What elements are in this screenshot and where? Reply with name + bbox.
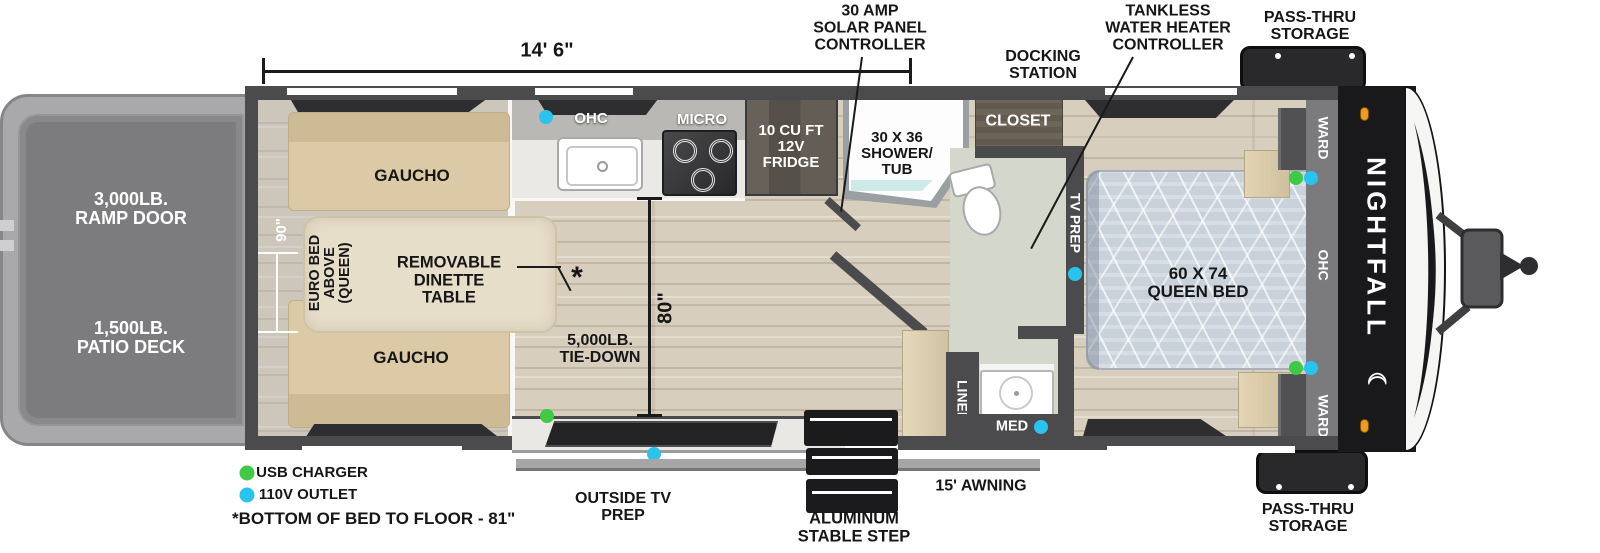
passthru-top-callout: PASS-THRU STORAGE [1264, 9, 1356, 43]
asterisk-leader-line [517, 266, 561, 268]
dinette-label: REMOVABLE DINETTE TABLE [397, 255, 501, 308]
stable-step-label: ALUMINUM STABLE STEP [798, 510, 910, 545]
closet-label: CLOSET [986, 112, 1051, 129]
garage-dim-tick [256, 252, 298, 254]
window [302, 446, 462, 453]
stable-step-line [812, 491, 892, 494]
legend-outlet-dot [240, 488, 255, 503]
hitch-tongue [1428, 198, 1546, 362]
gaucho-sofa-top [288, 112, 510, 211]
garage-dim-label: 90" [274, 218, 290, 242]
usb-charger-dot [540, 409, 554, 423]
height-dim-tick [637, 414, 662, 417]
screw-icon [1349, 53, 1355, 59]
length-dim-tick [262, 58, 265, 84]
legend-usb-label: USB CHARGER [256, 465, 368, 481]
stable-step-line [812, 456, 892, 459]
floorplan-diagram: 3,000LB. RAMP DOOR 1,500LB. PATIO DECK G… [0, 0, 1600, 553]
window [1107, 446, 1295, 453]
burner-icon [709, 139, 733, 163]
microwave-label: MICRO [677, 112, 727, 128]
asterisk-marker: * [571, 262, 583, 294]
ramp-door-panel [18, 114, 244, 426]
height-dim-tick [637, 197, 662, 200]
burner-icon [691, 168, 715, 192]
height-dim-label: 80" [656, 292, 677, 324]
wall-rear [245, 86, 258, 450]
garage-dim-line [276, 253, 278, 333]
screw-icon [1276, 484, 1282, 490]
shower-water-edge [851, 180, 933, 191]
vanity-drain-icon [1014, 391, 1019, 396]
garage-dim-tick [256, 331, 298, 333]
length-dim-tick [909, 58, 912, 84]
110v-outlet-dot [1304, 361, 1318, 375]
outside-tv-mat [545, 421, 778, 447]
window [1105, 88, 1237, 95]
legend-outlet-label: 110V OUTLET [259, 487, 357, 503]
usb-charger-dot [1289, 171, 1303, 185]
docking-station-callout: DOCKING STATION [1005, 48, 1081, 82]
ramp-door-label: 3,000LB. RAMP DOOR [75, 190, 187, 229]
euro-bed-label: EURO BED ABOVE (QUEEN) [308, 235, 354, 312]
window [287, 88, 457, 95]
legend-usb-dot [240, 466, 255, 481]
awning-bar [516, 459, 1040, 471]
pantry-cabinet [902, 330, 949, 440]
bed-ohc-label: OHC [1316, 249, 1331, 280]
brand-logo-text: NIGHTFALL [1362, 157, 1389, 339]
deck-hinge-icon [0, 240, 14, 251]
entry-step-line [810, 418, 892, 421]
sink-drain-icon [597, 161, 608, 172]
deck-hinge-icon [0, 220, 14, 231]
shower-label: 30 X 36 SHOWER/ TUB [861, 130, 933, 178]
patio-deck-label: 1,500LB. PATIO DECK [77, 319, 185, 358]
gaucho-top-label: GAUCHO [374, 167, 450, 185]
bed-foot-edge [1086, 170, 1099, 370]
gaucho-bottom-label: GAUCHO [373, 349, 449, 367]
fridge-label: 10 CU FT 12V FRIDGE [758, 123, 823, 171]
burner-icon [673, 139, 697, 163]
screw-icon [1348, 484, 1354, 490]
length-dim-label: 14' 6" [520, 40, 573, 61]
ward-top-label: WARD [1316, 117, 1331, 160]
110v-outlet-dot [1304, 171, 1318, 185]
wall-below-closet [975, 146, 1066, 158]
kitchen-ohc-label: OHC [574, 111, 607, 127]
length-dim-line [263, 70, 911, 73]
usb-charger-dot [1289, 361, 1303, 375]
crescent-moon-icon: ☾ [1363, 371, 1388, 393]
footnote: *BOTTOM OF BED TO FLOOR - 81" [232, 509, 515, 529]
outside-tv-label: OUTSIDE TV PREP [575, 490, 671, 524]
110v-outlet-dot [539, 110, 553, 124]
stable-step-2 [806, 479, 898, 513]
tankless-controller-callout: TANKLESS WATER HEATER CONTROLLER [1105, 2, 1231, 53]
stove-cooktop [662, 130, 737, 196]
stable-step-1 [806, 448, 898, 475]
queen-bed-label: 60 X 74 QUEEN BED [1147, 265, 1248, 301]
med-cabinet-label: MED [996, 419, 1028, 435]
110v-outlet-dot [1034, 420, 1048, 434]
marker-light-icon [1360, 419, 1369, 433]
110v-outlet-dot [1068, 267, 1082, 281]
ward-bottom-label: WARD [1316, 395, 1331, 438]
solar-controller-callout: 30 AMP SOLAR PANEL CONTROLLER [813, 2, 926, 53]
height-dim-line [648, 199, 651, 417]
kitchen-sink [557, 137, 643, 191]
passthru-bottom-callout: PASS-THRU STORAGE [1262, 501, 1354, 535]
screw-icon [1275, 53, 1281, 59]
tv-prep-label: TV PREP [1068, 193, 1083, 253]
tie-down-label: 5,000LB. TIE-DOWN [560, 332, 641, 366]
marker-light-icon [1360, 107, 1369, 121]
awning-label: 15' AWNING [935, 477, 1026, 494]
entry-step-interior [804, 410, 898, 446]
window [535, 88, 633, 95]
